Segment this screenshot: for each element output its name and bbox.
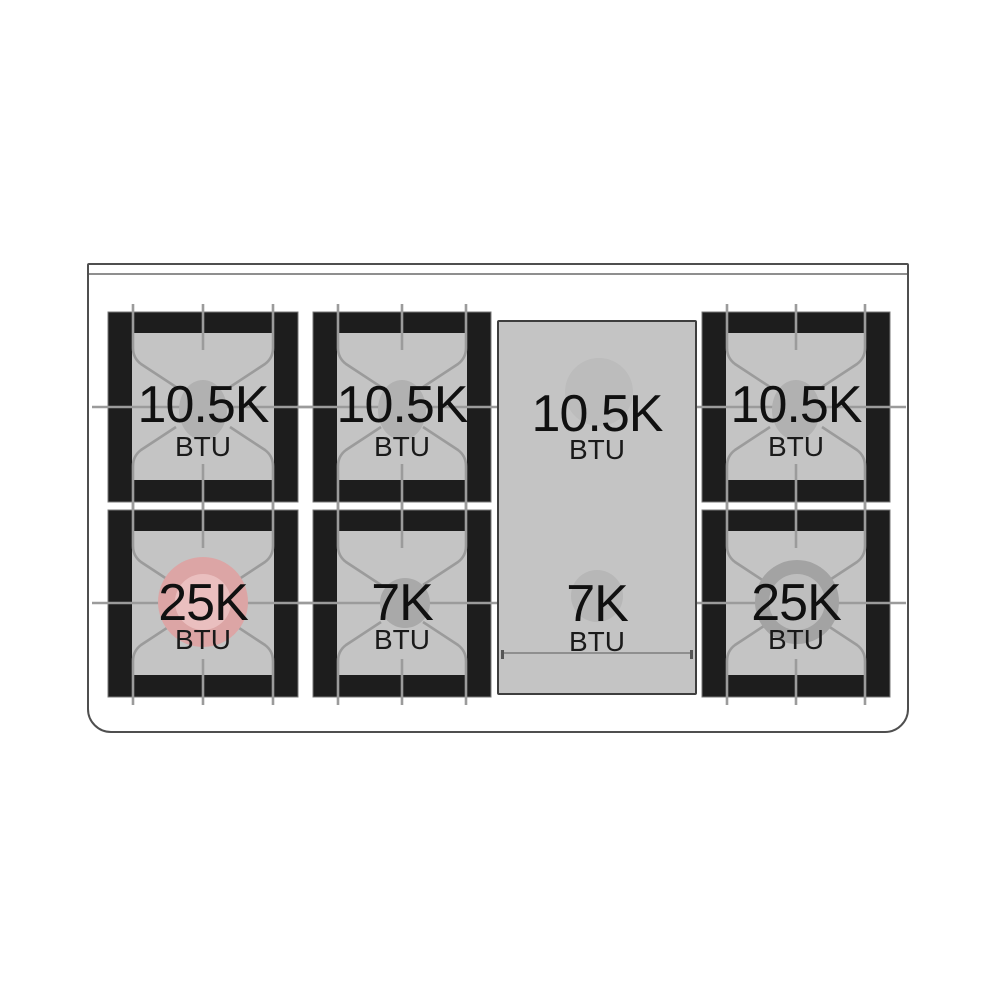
btu-unit-label: BTU (499, 628, 695, 656)
btu-value: 25K (108, 577, 298, 629)
btu-value: 10.5K (313, 379, 491, 431)
burner-bottom-right: 25K BTU (702, 510, 890, 697)
cooktop-diagram: { "diagram": { "type": "range-cooktop-bu… (0, 0, 1000, 1000)
btu-unit-label: BTU (108, 626, 298, 654)
btu-value: 10.5K (702, 379, 890, 431)
btu-value: 7K (313, 577, 491, 629)
griddle-panel: 10.5K BTU 7K BTU (497, 320, 697, 695)
btu-unit-label: BTU (108, 433, 298, 461)
btu-unit-label: BTU (702, 433, 890, 461)
btu-value: 10.5K (499, 388, 695, 440)
btu-unit-label: BTU (702, 626, 890, 654)
btu-unit-label: BTU (313, 626, 491, 654)
burner-bottom-left: 25K BTU (108, 510, 298, 697)
btu-unit-label: BTU (499, 436, 695, 464)
range-back-trim (89, 265, 907, 275)
btu-value: 25K (702, 577, 890, 629)
burner-top-right: 10.5K BTU (702, 312, 890, 502)
burner-top-left: 10.5K BTU (108, 312, 298, 502)
btu-value: 7K (499, 578, 695, 630)
btu-unit-label: BTU (313, 433, 491, 461)
burner-bottom-center: 7K BTU (313, 510, 491, 697)
burner-top-center: 10.5K BTU (313, 312, 491, 502)
btu-value: 10.5K (108, 379, 298, 431)
